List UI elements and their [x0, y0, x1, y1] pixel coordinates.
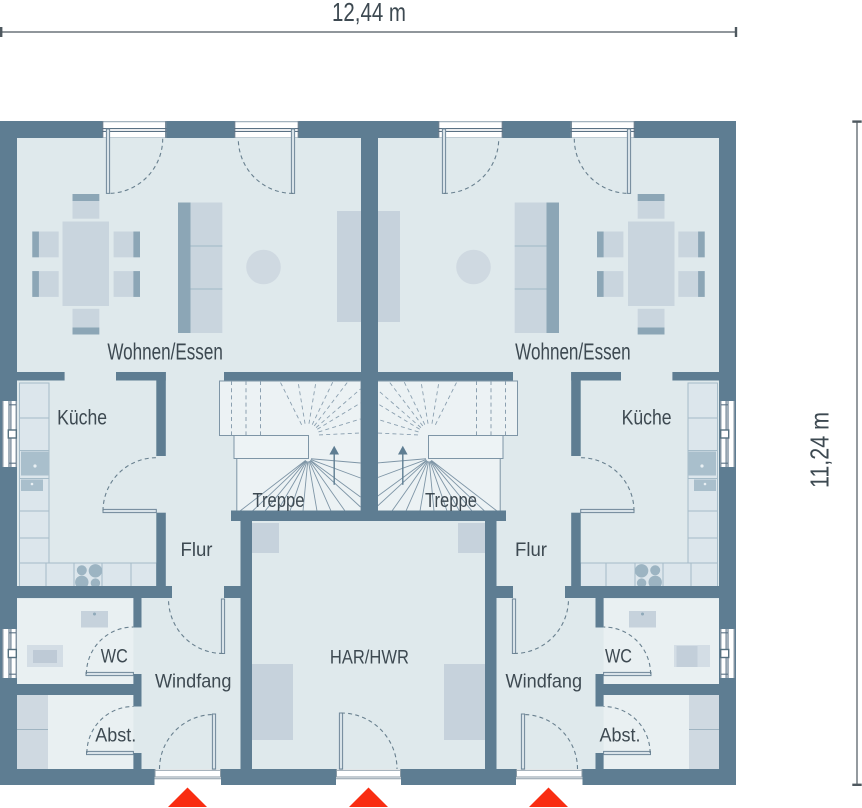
svg-text:Wohnen/Essen: Wohnen/Essen: [515, 339, 631, 365]
svg-text:Windfang: Windfang: [506, 671, 583, 693]
svg-text:Flur: Flur: [181, 539, 213, 561]
svg-text:Treppe: Treppe: [253, 489, 305, 512]
svg-text:WC: WC: [605, 646, 632, 668]
svg-text:Flur: Flur: [515, 539, 547, 561]
svg-text:11,24 m: 11,24 m: [805, 412, 835, 488]
svg-text:Abst.: Abst.: [95, 725, 136, 747]
svg-text:Küche: Küche: [57, 407, 107, 430]
svg-text:Abst.: Abst.: [600, 725, 641, 747]
svg-text:12,44 m: 12,44 m: [332, 0, 406, 27]
svg-text:Wohnen/Essen: Wohnen/Essen: [107, 339, 223, 365]
svg-text:Küche: Küche: [622, 407, 672, 430]
svg-text:Treppe: Treppe: [425, 489, 477, 512]
svg-text:HAR/HWR: HAR/HWR: [330, 647, 409, 669]
svg-text:WC: WC: [101, 646, 128, 668]
svg-text:Windfang: Windfang: [155, 671, 232, 693]
